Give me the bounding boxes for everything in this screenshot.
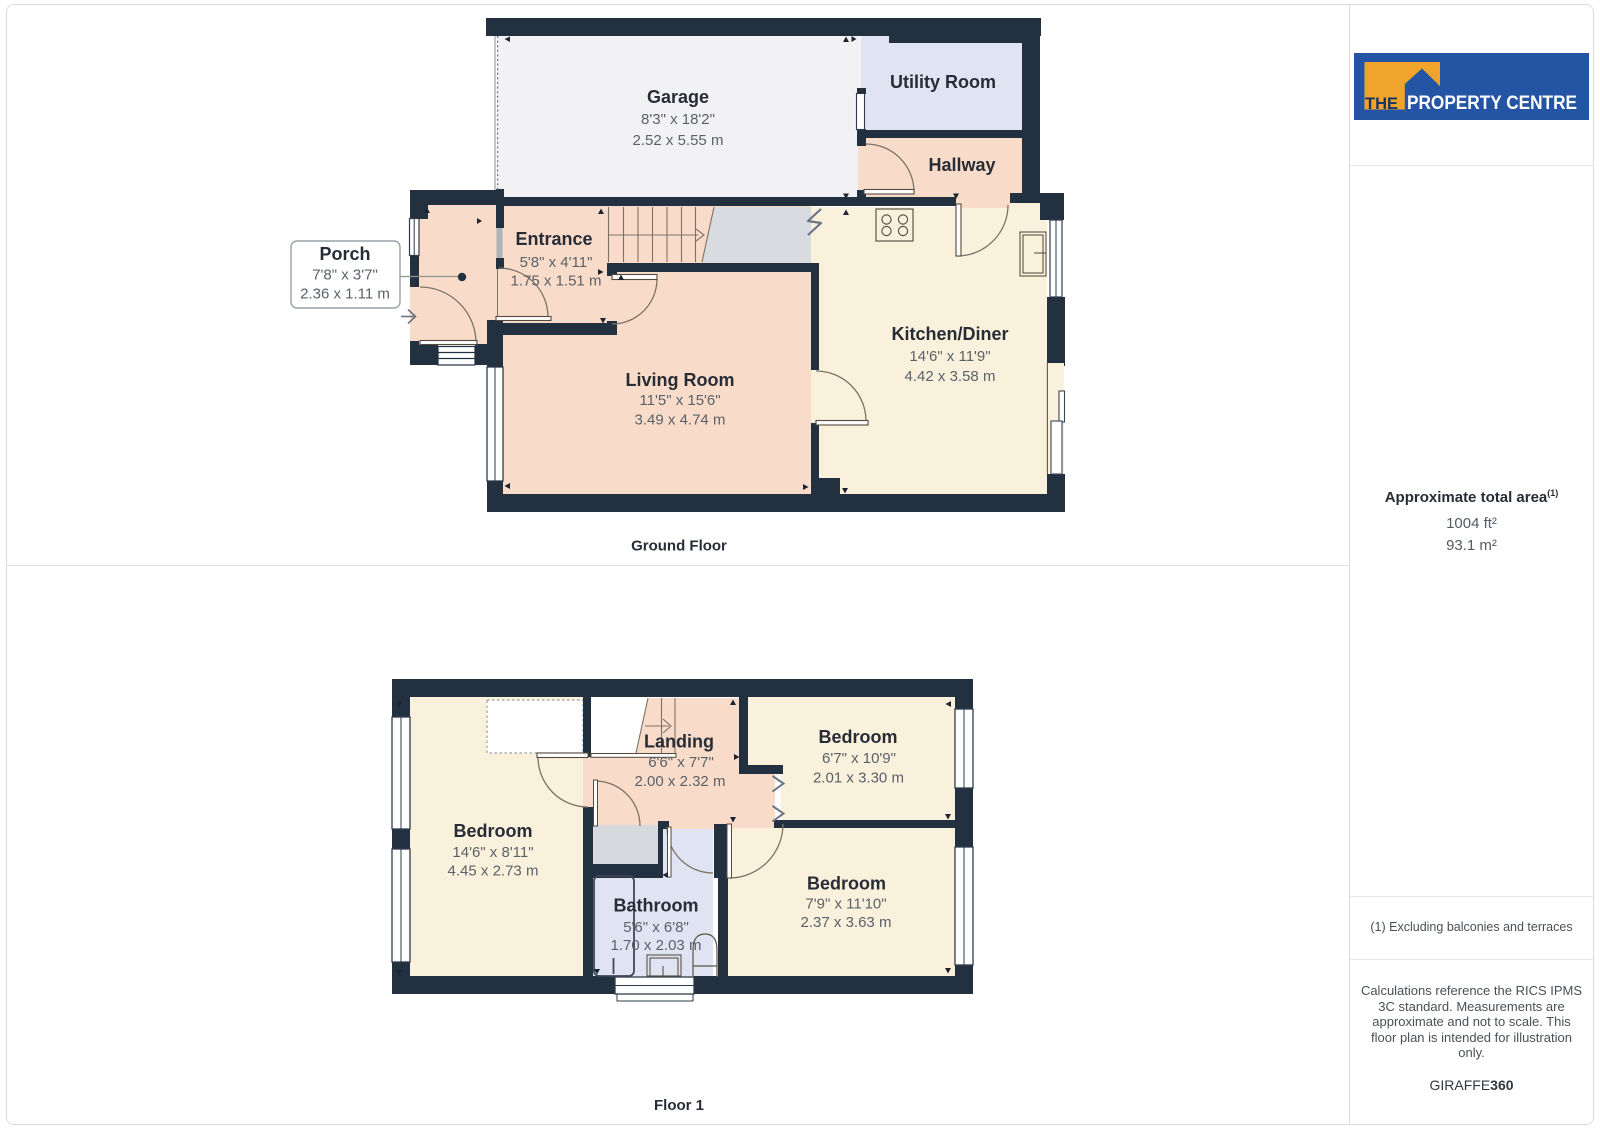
svg-text:Bedroom: Bedroom xyxy=(807,874,886,894)
svg-text:Hallway: Hallway xyxy=(928,155,995,175)
svg-text:Bathroom: Bathroom xyxy=(614,896,699,916)
svg-text:11'5" x 15'6": 11'5" x 15'6" xyxy=(639,392,720,409)
svg-text:4.42 x 3.58 m: 4.42 x 3.58 m xyxy=(905,368,996,385)
svg-text:2.36 x 1.11 m: 2.36 x 1.11 m xyxy=(300,286,390,303)
svg-text:4.45 x 2.73 m: 4.45 x 2.73 m xyxy=(448,863,539,880)
svg-text:3.49 x 4.74 m: 3.49 x 4.74 m xyxy=(635,412,726,429)
svg-text:Bedroom: Bedroom xyxy=(818,727,897,747)
svg-text:Garage: Garage xyxy=(647,87,709,107)
svg-text:6'6" x 7'7": 6'6" x 7'7" xyxy=(648,754,714,771)
svg-text:Landing: Landing xyxy=(644,732,714,752)
svg-text:7'8" x 3'7": 7'8" x 3'7" xyxy=(312,267,378,284)
svg-text:Entrance: Entrance xyxy=(515,229,592,249)
svg-text:14'6" x 11'9": 14'6" x 11'9" xyxy=(909,348,990,365)
svg-text:Living Room: Living Room xyxy=(626,370,735,390)
svg-text:Porch: Porch xyxy=(319,244,370,264)
svg-text:8'3" x 18'2": 8'3" x 18'2" xyxy=(641,111,715,128)
svg-text:2.00 x 2.32 m: 2.00 x 2.32 m xyxy=(635,773,726,790)
svg-text:Bedroom: Bedroom xyxy=(453,821,532,841)
svg-text:1.70 x 2.03 m: 1.70 x 2.03 m xyxy=(611,937,702,954)
svg-text:7'9" x 11'10": 7'9" x 11'10" xyxy=(805,896,886,913)
svg-text:5'6" x 6'8": 5'6" x 6'8" xyxy=(623,919,689,936)
svg-text:1.75 x 1.51 m: 1.75 x 1.51 m xyxy=(511,273,602,290)
svg-text:2.52 x 5.55 m: 2.52 x 5.55 m xyxy=(633,132,724,149)
svg-text:Kitchen/Diner: Kitchen/Diner xyxy=(891,324,1008,344)
svg-text:THE: THE xyxy=(1365,95,1398,113)
svg-text:5'8" x 4'11": 5'8" x 4'11" xyxy=(520,254,593,271)
svg-text:PROPERTY CENTRE: PROPERTY CENTRE xyxy=(1407,93,1577,114)
svg-text:6'7" x 10'9": 6'7" x 10'9" xyxy=(822,750,896,767)
svg-text:Floor 1: Floor 1 xyxy=(654,1097,704,1114)
svg-text:Utility Room: Utility Room xyxy=(890,72,996,92)
svg-text:14'6" x 8'11": 14'6" x 8'11" xyxy=(452,844,533,861)
svg-text:2.01 x 3.30 m: 2.01 x 3.30 m xyxy=(813,770,904,787)
svg-text:2.37 x 3.63 m: 2.37 x 3.63 m xyxy=(801,914,892,931)
svg-text:Ground Floor: Ground Floor xyxy=(631,538,727,555)
